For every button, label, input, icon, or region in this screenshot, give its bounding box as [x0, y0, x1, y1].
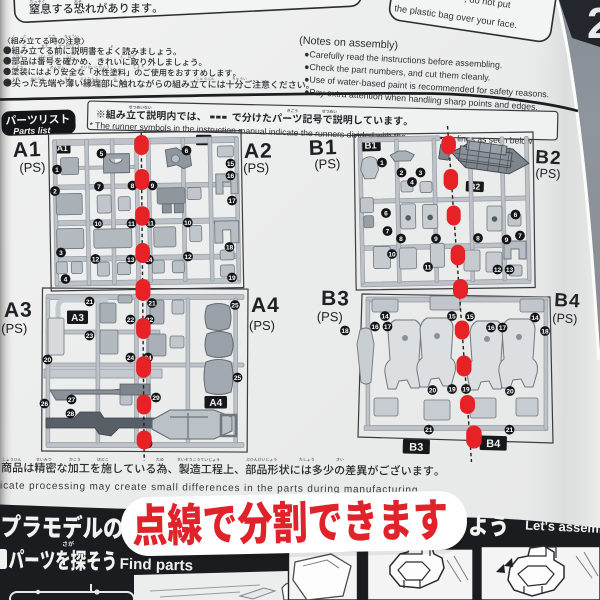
svg-text:(PS): (PS): [249, 318, 275, 333]
svg-text:17: 17: [499, 325, 507, 332]
svg-text:1: 1: [380, 160, 384, 167]
svg-text:10: 10: [184, 220, 192, 227]
svg-text:(PS): (PS): [535, 166, 561, 181]
svg-text:3: 3: [59, 250, 63, 257]
svg-text:25: 25: [231, 302, 239, 309]
svg-text:21: 21: [148, 300, 156, 307]
svg-text:13: 13: [127, 257, 135, 264]
svg-text:21: 21: [506, 427, 514, 434]
svg-text:18: 18: [226, 244, 234, 251]
svg-text:25: 25: [234, 375, 242, 382]
svg-text:11: 11: [425, 264, 432, 271]
svg-text:A3: A3: [4, 298, 33, 322]
svg-text:4: 4: [64, 276, 68, 283]
svg-text:8: 8: [399, 236, 403, 243]
svg-text:14: 14: [381, 313, 389, 320]
svg-text:14: 14: [531, 315, 539, 322]
svg-text:8: 8: [131, 183, 135, 190]
svg-text:19: 19: [228, 275, 236, 282]
svg-text:(PS): (PS): [314, 156, 341, 172]
svg-text:29: 29: [152, 395, 160, 402]
svg-text:21: 21: [86, 299, 94, 306]
svg-text:18: 18: [341, 328, 349, 335]
svg-text:16: 16: [227, 173, 235, 180]
svg-text:(PS): (PS): [552, 311, 578, 326]
svg-text:17: 17: [384, 324, 392, 331]
svg-text:(PS): (PS): [317, 309, 343, 324]
svg-text:2: 2: [587, 0, 600, 48]
svg-text:B4: B4: [486, 438, 501, 450]
svg-text:10: 10: [94, 221, 102, 228]
svg-text:B4: B4: [554, 290, 581, 312]
svg-text:7: 7: [386, 228, 390, 235]
svg-text:(PS): (PS): [243, 160, 269, 175]
svg-text:1: 1: [55, 167, 59, 174]
svg-text:24: 24: [127, 355, 135, 362]
svg-text:18: 18: [541, 328, 549, 335]
svg-text:11: 11: [128, 221, 135, 228]
svg-text:27: 27: [68, 397, 76, 404]
svg-text:8: 8: [476, 235, 480, 242]
svg-text:20: 20: [506, 388, 514, 395]
svg-text:22: 22: [127, 317, 135, 324]
svg-text:21: 21: [425, 427, 433, 434]
svg-text:4: 4: [410, 179, 414, 186]
svg-text:12: 12: [494, 267, 502, 274]
svg-text:19: 19: [448, 386, 456, 393]
svg-text:12: 12: [184, 254, 192, 261]
svg-text:(PS): (PS): [1, 321, 27, 336]
svg-text:17: 17: [228, 198, 236, 205]
svg-text:6: 6: [185, 148, 189, 155]
svg-text:15: 15: [466, 314, 474, 321]
svg-text:2: 2: [53, 188, 57, 195]
svg-text:23: 23: [86, 333, 94, 340]
svg-text:16: 16: [371, 324, 379, 331]
svg-text:20: 20: [44, 357, 52, 364]
svg-text:10: 10: [388, 251, 396, 258]
svg-text:12: 12: [92, 256, 100, 263]
svg-text:28: 28: [67, 411, 75, 418]
svg-text:6: 6: [384, 210, 388, 217]
svg-text:A3: A3: [71, 313, 84, 324]
svg-text:16: 16: [487, 325, 495, 332]
svg-text:A4: A4: [209, 398, 222, 409]
svg-text:9: 9: [151, 183, 155, 190]
svg-text:5: 5: [100, 151, 104, 158]
svg-text:26: 26: [41, 401, 49, 408]
svg-text:9: 9: [505, 237, 509, 244]
svg-text:20: 20: [429, 387, 437, 394]
svg-text:Parts list: Parts list: [13, 125, 51, 136]
svg-text:15: 15: [448, 313, 456, 320]
svg-text:15: 15: [227, 161, 235, 168]
svg-text:(PS): (PS): [19, 159, 46, 175]
svg-text:7: 7: [518, 233, 522, 240]
svg-text:13: 13: [506, 267, 514, 274]
svg-text:3: 3: [419, 170, 423, 177]
svg-text:A1: A1: [12, 138, 42, 162]
svg-text:7: 7: [97, 184, 101, 191]
svg-text:A4: A4: [251, 294, 280, 317]
svg-text:6: 6: [514, 212, 518, 219]
svg-text:B3: B3: [409, 441, 423, 453]
svg-text:2: 2: [400, 170, 404, 177]
svg-text:B3: B3: [321, 287, 350, 311]
svg-text:9: 9: [434, 236, 438, 243]
